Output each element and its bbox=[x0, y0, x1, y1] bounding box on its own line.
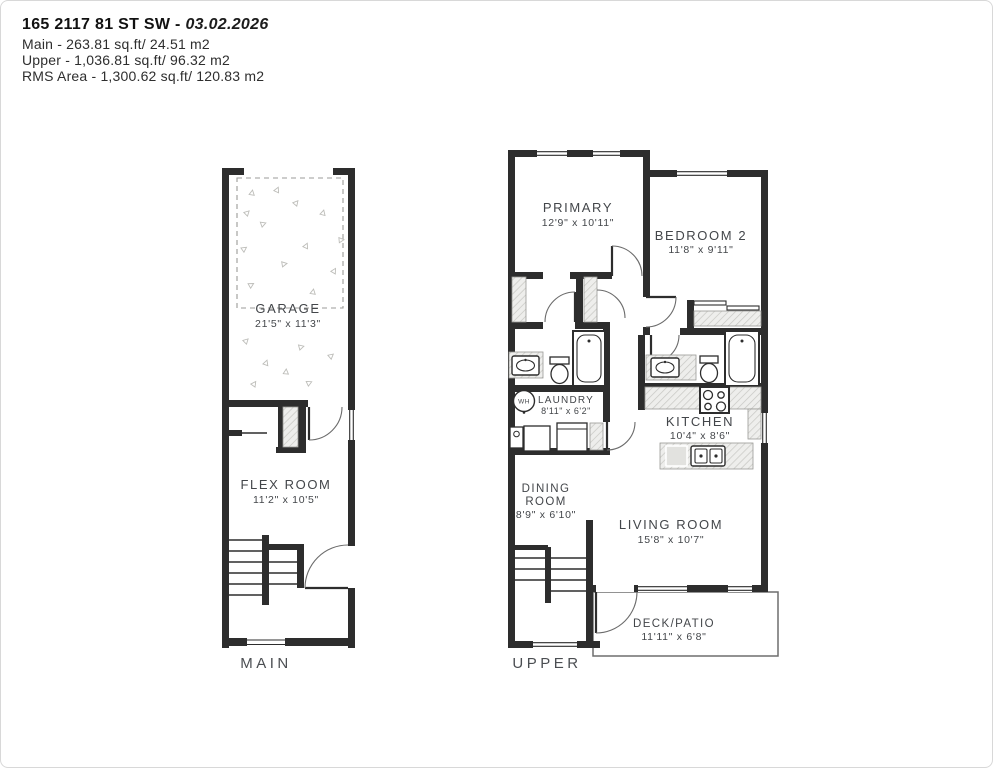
deck-patio-label: DECK/PATIO bbox=[633, 618, 715, 630]
laundry-label: LAUNDRY bbox=[538, 395, 594, 406]
deck-door-arc bbox=[596, 592, 637, 633]
floorplan-drawing: GARAGE 21'5" x 11'3" FLEX ROOM 11'2" x 1… bbox=[0, 0, 993, 768]
dining-room-label-2: ROOM bbox=[525, 496, 566, 508]
bathroom2-toilet-bowl bbox=[701, 364, 718, 383]
laundry-closet-hatch bbox=[590, 423, 603, 450]
washer-icon bbox=[524, 426, 550, 451]
bathroom1-door-arc bbox=[545, 292, 575, 322]
main-floor-plan: GARAGE 21'5" x 11'3" FLEX ROOM 11'2" x 1… bbox=[222, 168, 355, 672]
entry-closet-hatch bbox=[283, 407, 298, 447]
dryer-icon bbox=[557, 423, 587, 451]
dishwasher-icon bbox=[666, 446, 687, 466]
bathroom1-toilet-bowl bbox=[551, 365, 568, 384]
primary-dims: 12'9" x 10'11" bbox=[542, 217, 614, 229]
hall-closet-door-arc bbox=[597, 290, 625, 318]
bedroom2-dims: 11'8" x 9'11" bbox=[668, 244, 733, 256]
kitchen-counter-right bbox=[729, 387, 761, 409]
bedroom2-closet-slider-1 bbox=[694, 301, 726, 305]
floorplan-page: 165 2117 81 ST SW - 03.02.2026 Main - 26… bbox=[0, 0, 993, 768]
bathroom2-toilet-tank bbox=[700, 356, 718, 363]
kitchen-label: KITCHEN bbox=[666, 414, 734, 429]
garage-concrete-texture bbox=[241, 186, 344, 387]
laundry-dims: 8'11" x 6'2" bbox=[541, 406, 591, 416]
hall-closet-hatch bbox=[584, 277, 597, 322]
living-room-dims: 15'8" x 10'7" bbox=[638, 534, 705, 546]
garage-flex-door-arc bbox=[309, 407, 342, 440]
bedroom2-closet-slider-2 bbox=[727, 306, 759, 310]
flex-room-label: FLEX ROOM bbox=[241, 477, 332, 492]
bathroom2-fixtures bbox=[646, 331, 759, 386]
living-room-label: LIVING ROOM bbox=[619, 517, 723, 532]
kitchen-counter-left bbox=[645, 387, 700, 409]
deck-patio-dims: 11'11" x 6'8" bbox=[641, 631, 706, 643]
kitchen-dims: 10'4" x 8'6" bbox=[670, 430, 730, 442]
primary-closet-hatch bbox=[512, 277, 526, 322]
laundry-sink bbox=[510, 427, 523, 448]
kitchen-counter-side bbox=[748, 409, 761, 439]
primary-label: PRIMARY bbox=[543, 200, 613, 215]
water-heater-label: WH bbox=[518, 399, 530, 406]
bedroom2-door-arc bbox=[646, 297, 676, 327]
primary-door-arc bbox=[612, 246, 642, 276]
laundry-door-arc bbox=[607, 422, 635, 450]
garage-label: GARAGE bbox=[255, 301, 320, 316]
garage-door-dashed-outline bbox=[237, 178, 343, 308]
upper-floor-plan: WH bbox=[508, 150, 778, 672]
dining-room-dims: 8'9" x 6'10" bbox=[516, 509, 576, 521]
entry-door-arc bbox=[305, 545, 348, 588]
dining-room-label-1: DINING bbox=[522, 483, 571, 495]
garage-dims: 21'5" x 11'3" bbox=[255, 318, 321, 330]
upper-floor-label: UPPER bbox=[512, 655, 581, 672]
main-floor-label: MAIN bbox=[240, 655, 292, 672]
bathroom1-fixtures bbox=[509, 331, 605, 386]
bathroom1-toilet-tank bbox=[550, 357, 569, 364]
bedroom2-closet-hatch bbox=[694, 311, 761, 326]
flex-room-dims: 11'2" x 10'5" bbox=[253, 494, 319, 506]
bedroom2-label: BEDROOM 2 bbox=[655, 228, 747, 243]
